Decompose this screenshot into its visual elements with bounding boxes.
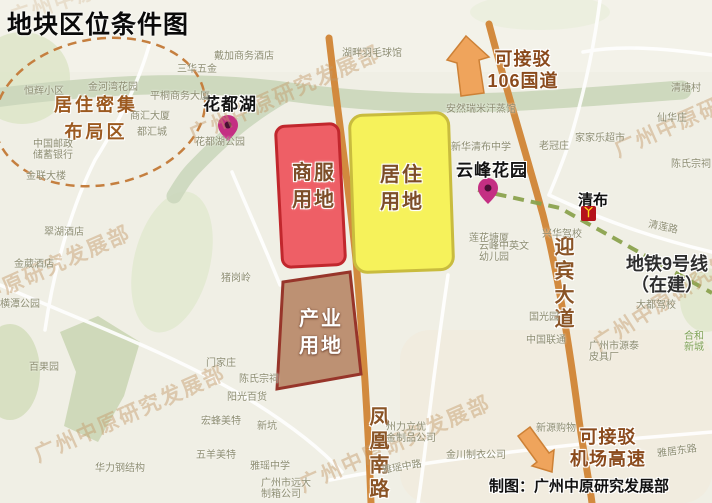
- map-label: 广州市源泰 皮具厂: [589, 341, 639, 363]
- pin-dot: [225, 122, 232, 129]
- map-label: 商汇大厦: [130, 111, 170, 122]
- map-label: 州力立优 金制品公司: [386, 422, 436, 444]
- map-label: 湖畔羽毛球馆: [342, 48, 402, 59]
- map-label: 猪岗岭: [221, 273, 251, 284]
- map-label: 横潭公园: [0, 299, 40, 310]
- map-label: 清塘村: [671, 83, 701, 94]
- page-title: 地块区位条件图: [7, 5, 189, 41]
- residential-zone-label: 居住 用地: [369, 162, 435, 216]
- fenghuang-south-road-label: 凤凰南路: [363, 406, 392, 502]
- pin-dot: [485, 185, 492, 192]
- map-label: 新源购物: [536, 423, 576, 434]
- airport-expressway-label: 可接驳 机场高速: [566, 426, 650, 470]
- industrial-zone-label: 产业 用地: [288, 306, 354, 360]
- map-label: 陈氏宗祠: [671, 159, 711, 170]
- map-label: 都汇城: [137, 127, 167, 138]
- huadu-lake-label: 花都湖: [203, 90, 257, 115]
- map-label: 金联大楼: [26, 171, 66, 182]
- map-label: 五羊美特: [196, 450, 236, 461]
- credit-line: 制图：广州中原研究发展部: [489, 475, 669, 496]
- map-canvas[interactable]: 广州中原研究发展部 广州中原研究发展部 广州中原研究发展部 广州中原研究发展部 …: [0, 0, 712, 503]
- map-label: 平桐商务大厦: [150, 91, 210, 102]
- metro-station-icon: 丫: [581, 206, 596, 221]
- commercial-zone-label: 商服 用地: [281, 160, 347, 214]
- map-label: 金葳酒店: [14, 259, 54, 270]
- map-label: 广州市远大 制箱公司: [261, 478, 311, 500]
- yunfeng-garden-label: 云峰花园: [456, 156, 528, 181]
- map-label: 中国联通: [526, 335, 566, 346]
- map-label: 金河湾花园: [88, 82, 138, 93]
- map-label: 恒辉小区: [24, 86, 64, 97]
- map-label: 雅瑶中学: [250, 461, 290, 472]
- map-label: 门家庄: [206, 358, 236, 369]
- map-label: 合和新城: [684, 331, 712, 353]
- map-label: 阳光百货: [227, 392, 267, 403]
- map-label: 宏蜂美特: [201, 416, 241, 427]
- map-label: 花都湖公园: [195, 137, 245, 148]
- map-label: 国光园: [529, 312, 559, 323]
- map-label: 金川制衣公司: [446, 450, 506, 461]
- map-label: 大都驾校: [636, 300, 676, 311]
- metro-line-label: 地铁9号线 （在建）: [620, 254, 712, 296]
- map-label: 云峰中英文 幼儿园: [479, 241, 529, 263]
- national-road-106-label: 可接驳 106国道: [480, 48, 566, 92]
- map-label: 百果园: [29, 362, 59, 373]
- map-label: 三华五金: [177, 64, 217, 75]
- map-label: 中国邮政 储蓄银行: [33, 139, 73, 161]
- map-label: 华力钢结构: [95, 463, 145, 474]
- map-label: 新坑: [257, 421, 277, 432]
- map-label: 新华清布中学: [451, 142, 511, 153]
- map-label: 老冠庄: [539, 141, 569, 152]
- map-label: 翠湖酒店: [44, 227, 84, 238]
- map-label: 家家乐超市: [575, 133, 625, 144]
- map-label: 仙华庄: [657, 113, 687, 124]
- map-label: 戴加商务酒店: [214, 51, 274, 62]
- map-label: 兴华驾校: [542, 229, 582, 240]
- map-label: 安然瑞米汗蒸馆: [446, 104, 516, 115]
- map-label: 陈氏宗祠: [239, 374, 279, 385]
